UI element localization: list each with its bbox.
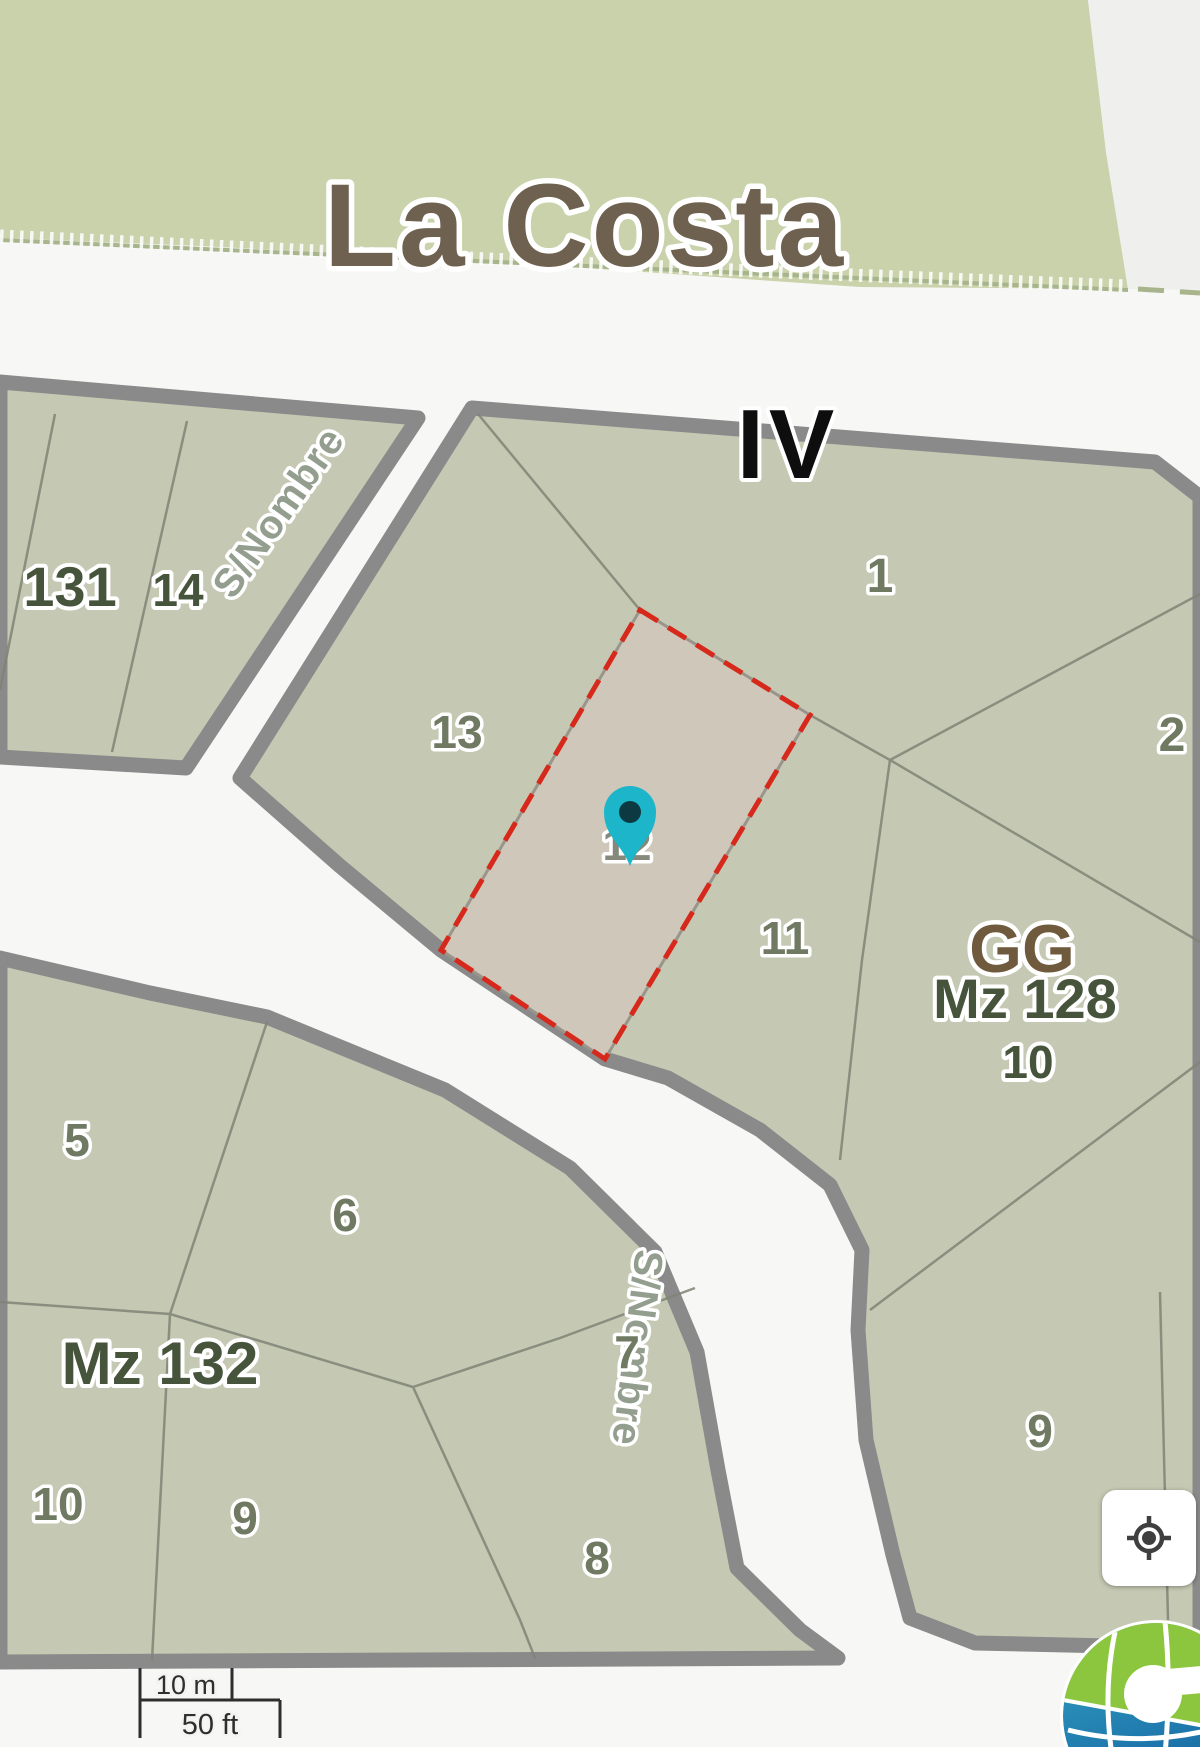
parcel-label-9-sw: 9 — [232, 1492, 258, 1544]
parcel-label-13: 13 — [431, 706, 482, 758]
parcel-label-5: 5 — [64, 1114, 90, 1166]
locate-button[interactable] — [1102, 1490, 1196, 1586]
sector-label: IV — [737, 389, 840, 499]
scale-imperial: 50 ft — [182, 1709, 238, 1741]
parcel-label-6: 6 — [332, 1189, 358, 1241]
locality-label: La Costa — [324, 160, 846, 292]
parcel-label-8: 8 — [584, 1532, 610, 1584]
parcel-label-7: 7 — [614, 1326, 640, 1378]
parcel-label-9-e: 9 — [1027, 1405, 1053, 1457]
globe-logo — [1060, 1618, 1200, 1747]
block-label-mz128-10: 10 — [1002, 1036, 1053, 1088]
scale-bar: 10 m 50 ft — [140, 1668, 280, 1741]
block-label-131: 131 — [23, 555, 116, 618]
block-label-14: 14 — [152, 564, 204, 616]
gps-target-icon — [1126, 1515, 1172, 1561]
block-label-mz132: Mz 132 — [62, 1330, 259, 1397]
parcel-label-11: 11 — [761, 912, 810, 964]
scale-metric: 10 m — [156, 1670, 216, 1700]
parcel-label-2: 2 — [1159, 709, 1186, 762]
parcel-label-1: 1 — [867, 550, 894, 603]
map-screen: S/Nombre S/Nombre 131 14 GG Mz 128 10 Mz… — [0, 0, 1200, 1747]
block-label-mz128: Mz 128 — [933, 967, 1117, 1030]
map-canvas[interactable]: S/Nombre S/Nombre 131 14 GG Mz 128 10 Mz… — [0, 0, 1200, 1747]
parcel-label-10-sw: 10 — [32, 1478, 83, 1530]
